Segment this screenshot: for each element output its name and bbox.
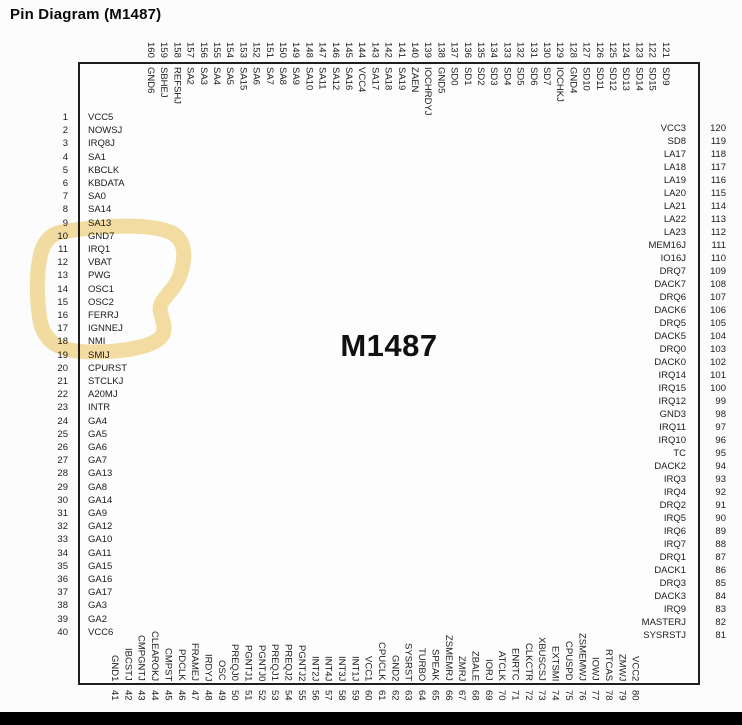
pin-number: 72: [523, 690, 533, 701]
pin-number: 70: [496, 690, 506, 701]
bottom-black-bar: [0, 712, 742, 725]
pin-number: 143: [369, 42, 379, 58]
pin-number: 150: [277, 42, 287, 58]
pin-label: SD11: [594, 67, 604, 90]
pin-label: IRQ5: [560, 512, 686, 525]
pin-label: CLKCTR: [523, 643, 533, 681]
pin-label: DACK7: [560, 278, 686, 291]
pin-number: 46: [176, 690, 186, 701]
pin-number: 71: [510, 690, 520, 701]
pin-number: 94: [704, 460, 726, 473]
pin-number: 91: [704, 499, 726, 512]
pin-number: 92: [704, 486, 726, 499]
pin-label: CMPGNTJ: [136, 635, 146, 681]
pin-label: SD3: [488, 67, 498, 85]
pin-label: IRQ11: [560, 421, 686, 434]
pin-label: LA18: [560, 161, 686, 174]
pin-number: 12: [30, 256, 68, 269]
pin-number: 131: [528, 42, 538, 58]
pin-number: 73: [536, 690, 546, 701]
pin-label: SD12: [607, 67, 617, 91]
pin-number: 119: [704, 135, 726, 148]
pin-label: VBAT: [88, 256, 208, 269]
pin-label: VCC2: [630, 656, 640, 681]
pin-label: SA16: [343, 67, 353, 90]
pin-label: DACK0: [560, 356, 686, 369]
pin-number: 139: [422, 42, 432, 58]
pin-label: SA11: [317, 67, 327, 90]
pin-number: 62: [389, 690, 399, 701]
pin-label: GA4: [88, 415, 208, 428]
pin-number: 34: [30, 547, 68, 560]
pin-number: 152: [251, 42, 261, 58]
pin-number: 13: [30, 269, 68, 282]
pin-number: 155: [211, 42, 221, 58]
pin-number: 33: [30, 533, 68, 546]
pin-label: SA18: [383, 67, 393, 90]
pin-label: IRQ14: [560, 369, 686, 382]
pin-number: 121: [660, 42, 670, 58]
pin-label: IRQ12: [560, 395, 686, 408]
pin-number: 129: [554, 42, 564, 58]
pin-label: DRQ7: [560, 265, 686, 278]
pin-number: 25: [30, 428, 68, 441]
pin-number: 87: [704, 551, 726, 564]
pin-label: SA14: [88, 203, 208, 216]
pin-label: SD9: [660, 67, 670, 85]
pin-number: 17: [30, 322, 68, 335]
pin-number: 32: [30, 520, 68, 533]
pin-label: GA13: [88, 467, 208, 480]
pin-label: GA11: [88, 547, 208, 560]
pin-number: 89: [704, 525, 726, 538]
pin-label: DACK3: [560, 590, 686, 603]
pin-number: 135: [475, 42, 485, 58]
pin-label: IRQ4: [560, 486, 686, 499]
pin-label: IRDYJ: [202, 654, 212, 681]
pin-label: GA6: [88, 441, 208, 454]
pin-number: 7: [30, 190, 68, 203]
pin-label: LA19: [560, 174, 686, 187]
pin-label: IORJ: [483, 659, 493, 681]
pin-number: 153: [237, 42, 247, 58]
pin-label: IRQ6: [560, 525, 686, 538]
pin-number: 145: [343, 42, 353, 58]
pin-number: 29: [30, 481, 68, 494]
pin-label: GND5: [435, 67, 445, 93]
pin-number: 122: [647, 42, 657, 58]
pin-label: NMI: [88, 335, 208, 348]
pin-number: 19: [30, 349, 68, 362]
pin-label: DRQ0: [560, 343, 686, 356]
pin-number: 41: [109, 690, 119, 701]
pin-number: 80: [630, 690, 640, 701]
pin-number: 74: [550, 690, 560, 701]
pin-number: 14: [30, 283, 68, 296]
pin-label: INT4J: [323, 656, 333, 681]
pin-label: VCC6: [88, 626, 208, 639]
pin-number: 158: [171, 42, 181, 58]
pin-label: IBCSTJ: [122, 648, 132, 681]
pin-label: VCC3: [560, 122, 686, 135]
pin-number: 95: [704, 447, 726, 460]
pin-number: 103: [704, 343, 726, 356]
pin-number: 148: [303, 42, 313, 58]
pin-label: GA2: [88, 613, 208, 626]
pin-number: 2: [30, 124, 68, 137]
pin-label: IRQ10: [560, 434, 686, 447]
pin-number: 107: [704, 291, 726, 304]
pin-label: IOCHKJ: [554, 67, 564, 102]
pin-label: GA10: [88, 533, 208, 546]
pin-number: 11: [30, 243, 68, 256]
pin-number: 146: [330, 42, 340, 58]
pin-number: 114: [704, 200, 726, 213]
pin-label: IGNNEJ: [88, 322, 208, 335]
pin-label: MASTERJ: [560, 616, 686, 629]
pin-number: 64: [416, 690, 426, 701]
pin-label: DRQ3: [560, 577, 686, 590]
pin-label: DACK1: [560, 564, 686, 577]
pin-number: 55: [296, 690, 306, 701]
pin-number: 108: [704, 278, 726, 291]
pin-number: 113: [704, 213, 726, 226]
pin-label: SA8: [277, 67, 287, 85]
pin-number: 156: [198, 42, 208, 58]
pin-number: 160: [145, 42, 155, 58]
pin-label: SD14: [633, 67, 643, 91]
pin-number: 69: [483, 690, 493, 701]
pin-label: SA12: [330, 67, 340, 90]
pin-label: DRQ2: [560, 499, 686, 512]
pin-label: SD8: [560, 135, 686, 148]
pin-label: SD10: [581, 67, 591, 91]
pin-label: SMIJ: [88, 349, 208, 362]
pin-number: 26: [30, 441, 68, 454]
pin-label: SD1: [462, 67, 472, 85]
pin-label: TURBO: [416, 648, 426, 681]
pin-label: INT1J: [349, 656, 359, 681]
pin-label: SA10: [303, 67, 313, 90]
pin-label: DRQ1: [560, 551, 686, 564]
pin-label: DACK2: [560, 460, 686, 473]
pin-label: ZSMEMWJ: [576, 633, 586, 681]
pin-label: PWG: [88, 269, 208, 282]
pin-label: LA21: [560, 200, 686, 213]
pin-number: 99: [704, 395, 726, 408]
pin-label: GA7: [88, 454, 208, 467]
pin-number: 49: [216, 690, 226, 701]
pin-number: 10: [30, 230, 68, 243]
pin-number: 24: [30, 415, 68, 428]
pin-number: 142: [383, 42, 393, 58]
pin-number: 90: [704, 512, 726, 525]
pin-label: SA15: [237, 67, 247, 90]
pin-number: 141: [396, 42, 406, 58]
pin-number: 159: [158, 42, 168, 58]
pin-label: CPUCLK: [376, 642, 386, 681]
pin-label: DRQ6: [560, 291, 686, 304]
pin-number: 9: [30, 217, 68, 230]
pin-number: 57: [323, 690, 333, 701]
pin-label: CPUSPD: [563, 641, 573, 681]
pin-label: KBCLK: [88, 164, 208, 177]
pin-label: PGNTJ0: [256, 645, 266, 681]
pin-label: GND7: [88, 230, 208, 243]
pin-label: GA14: [88, 494, 208, 507]
pin-number: 47: [189, 690, 199, 701]
pin-number: 110: [704, 252, 726, 265]
pin-label: REFSHJ: [171, 67, 181, 104]
pin-number: 16: [30, 309, 68, 322]
pin-label: GA17: [88, 586, 208, 599]
pin-number: 1: [30, 111, 68, 124]
pin-label: SD5: [515, 67, 525, 85]
pin-label: TC: [560, 447, 686, 460]
pin-label: SA3: [198, 67, 208, 85]
pin-number: 65: [429, 690, 439, 701]
pin-label: OSC: [216, 660, 226, 681]
pin-label: IRQ3: [560, 473, 686, 486]
pin-label: IO16J: [560, 252, 686, 265]
pin-label: SD0: [449, 67, 459, 85]
pin-number: 154: [224, 42, 234, 58]
pin-number: 21: [30, 375, 68, 388]
pin-number: 43: [136, 690, 146, 701]
pin-number: 61: [376, 690, 386, 701]
pin-number: 23: [30, 401, 68, 414]
pin-number: 112: [704, 226, 726, 239]
pin-label: GND1: [109, 655, 119, 681]
pin-label: IOCHRDYJ: [422, 67, 432, 116]
pin-label: PREQJ0: [229, 644, 239, 681]
pin-number: 6: [30, 177, 68, 190]
pin-label: GA16: [88, 573, 208, 586]
pin-number: 58: [336, 690, 346, 701]
pin-number: 98: [704, 408, 726, 421]
pin-number: 120: [704, 122, 726, 135]
pin-label: ZMRJ: [456, 656, 466, 681]
pin-number: 134: [488, 42, 498, 58]
pin-label: ZBALE: [469, 651, 479, 681]
pin-label: VCC5: [88, 111, 208, 124]
pin-number: 128: [567, 42, 577, 58]
pin-number: 138: [435, 42, 445, 58]
pin-label: DACK6: [560, 304, 686, 317]
pin-label: PGNTJ2: [296, 645, 306, 681]
pin-number: 111: [704, 239, 726, 252]
pin-number: 68: [469, 690, 479, 701]
pin-number: 35: [30, 560, 68, 573]
pin-label: ATCLK: [496, 651, 506, 681]
pin-number: 31: [30, 507, 68, 520]
pin-label: LA23: [560, 226, 686, 239]
pin-label: ZMWJ: [616, 654, 626, 681]
pin-label: INT2J: [309, 656, 319, 681]
pin-number: 116: [704, 174, 726, 187]
pin-label: SD2: [475, 67, 485, 85]
pin-number: 151: [264, 42, 274, 58]
pin-label: SD6: [528, 67, 538, 85]
pin-number: 117: [704, 161, 726, 174]
pin-number: 38: [30, 599, 68, 612]
pin-number: 8: [30, 203, 68, 216]
pin-label: LA22: [560, 213, 686, 226]
pin-label: GA3: [88, 599, 208, 612]
pin-number: 96: [704, 434, 726, 447]
pin-number: 20: [30, 362, 68, 375]
pin-label: EXTSMI: [550, 646, 560, 681]
pin-number: 102: [704, 356, 726, 369]
pin-number: 40: [30, 626, 68, 639]
pin-number: 45: [162, 690, 172, 701]
pin-label: SD15: [647, 67, 657, 91]
pin-label: OSC1: [88, 283, 208, 296]
pin-number: 106: [704, 304, 726, 317]
pin-number: 109: [704, 265, 726, 278]
pin-number: 118: [704, 148, 726, 161]
pin-label: VCC1: [363, 656, 373, 681]
pin-number: 78: [603, 690, 613, 701]
pin-label: CMPST: [162, 648, 172, 681]
pin-label: XBUSCSJ: [536, 637, 546, 681]
pin-number: 54: [283, 690, 293, 701]
pin-number: 105: [704, 317, 726, 330]
pin-label: CPURST: [88, 362, 208, 375]
pin-number: 39: [30, 613, 68, 626]
pin-number: 136: [462, 42, 472, 58]
pin-number: 76: [576, 690, 586, 701]
pin-number: 84: [704, 590, 726, 603]
pin-label: SA5: [224, 67, 234, 85]
pin-label: GA9: [88, 507, 208, 520]
pin-label: SD7: [541, 67, 551, 85]
pin-label: ENRTC: [510, 648, 520, 681]
pin-label: MEM16J: [560, 239, 686, 252]
pin-number: 27: [30, 454, 68, 467]
pin-label: GND2: [389, 655, 399, 681]
pin-label: SA2: [185, 67, 195, 85]
pin-label: SPEAK: [429, 649, 439, 681]
pin-number: 4: [30, 151, 68, 164]
pin-label: A20MJ: [88, 388, 208, 401]
pin-label: SA6: [251, 67, 261, 85]
pin-number: 83: [704, 603, 726, 616]
pin-number: 101: [704, 369, 726, 382]
pin-number: 37: [30, 586, 68, 599]
pin-number: 59: [349, 690, 359, 701]
pin-label: GA8: [88, 481, 208, 494]
pin-label: SA7: [264, 67, 274, 85]
pin-label: GA5: [88, 428, 208, 441]
pin-label: IRQ15: [560, 382, 686, 395]
pin-label: IRQ9: [560, 603, 686, 616]
pin-number: 30: [30, 494, 68, 507]
pin-number: 144: [356, 42, 366, 58]
pin-label: INT3J: [336, 656, 346, 681]
pin-number: 22: [30, 388, 68, 401]
pin-number: 137: [449, 42, 459, 58]
pin-label: SBHEJ: [158, 67, 168, 98]
pin-number: 97: [704, 421, 726, 434]
pin-number: 42: [122, 690, 132, 701]
pin-label: VCC4: [356, 67, 366, 92]
pin-label: SA19: [396, 67, 406, 90]
pin-label: SA4: [211, 67, 221, 85]
pin-label: GND6: [145, 67, 155, 93]
pin-label: GND3: [560, 408, 686, 421]
pin-label: LA20: [560, 187, 686, 200]
pin-number: 50: [229, 690, 239, 701]
pin-number: 36: [30, 573, 68, 586]
pin-number: 147: [317, 42, 327, 58]
pin-number: 44: [149, 690, 159, 701]
pin-label: GND4: [567, 67, 577, 93]
pin-label: RTCAS: [603, 649, 613, 681]
pin-number: 66: [443, 690, 453, 701]
pin-label: IRQ1: [88, 243, 208, 256]
pin-label: OSC2: [88, 296, 208, 309]
pin-label: GA12: [88, 520, 208, 533]
pin-number: 51: [243, 690, 253, 701]
pin-number: 5: [30, 164, 68, 177]
pin-number: 123: [633, 42, 643, 58]
pin-number: 130: [541, 42, 551, 58]
pin-number: 86: [704, 564, 726, 577]
pin-label: IRQ7: [560, 538, 686, 551]
pin-number: 127: [581, 42, 591, 58]
pin-number: 93: [704, 473, 726, 486]
pin-number: 115: [704, 187, 726, 200]
pin-label: FERRJ: [88, 309, 208, 322]
pin-number: 53: [269, 690, 279, 701]
pin-label: ZAEN: [409, 67, 419, 92]
pin-number: 125: [607, 42, 617, 58]
pin-label: INTR: [88, 401, 208, 414]
pin-number: 157: [185, 42, 195, 58]
pin-number: 104: [704, 330, 726, 343]
pin-label: PDCLK: [176, 649, 186, 681]
pin-number: 18: [30, 335, 68, 348]
pin-label: NOWSJ: [88, 124, 208, 137]
pin-label: IOWJ: [590, 657, 600, 681]
pin-label: SYSRST: [403, 643, 413, 681]
pin-number: 48: [202, 690, 212, 701]
pin-label: PREQJ2: [283, 644, 293, 681]
pin-number: 81: [704, 629, 726, 642]
pin-number: 52: [256, 690, 266, 701]
pin-number: 140: [409, 42, 419, 58]
pin-number: 124: [620, 42, 630, 58]
pin-label: SD4: [501, 67, 511, 85]
pin-number: 28: [30, 467, 68, 480]
pin-number: 3: [30, 137, 68, 150]
pin-number: 63: [403, 690, 413, 701]
pin-number: 100: [704, 382, 726, 395]
pin-diagram-page: Pin Diagram (M1487) M1487 1VCC52NOWSJ3IR…: [0, 0, 742, 725]
pin-label: DRQ5: [560, 317, 686, 330]
pin-label: ZSMEMRJ: [443, 635, 453, 681]
pin-label: STCLKJ: [88, 375, 208, 388]
pin-label: SA17: [369, 67, 379, 90]
pin-number: 56: [309, 690, 319, 701]
pin-number: 88: [704, 538, 726, 551]
pin-label: PGNTJ1: [243, 645, 253, 681]
pin-label: SA13: [88, 217, 208, 230]
pin-number: 15: [30, 296, 68, 309]
pin-number: 149: [290, 42, 300, 58]
pin-label: SA9: [290, 67, 300, 85]
